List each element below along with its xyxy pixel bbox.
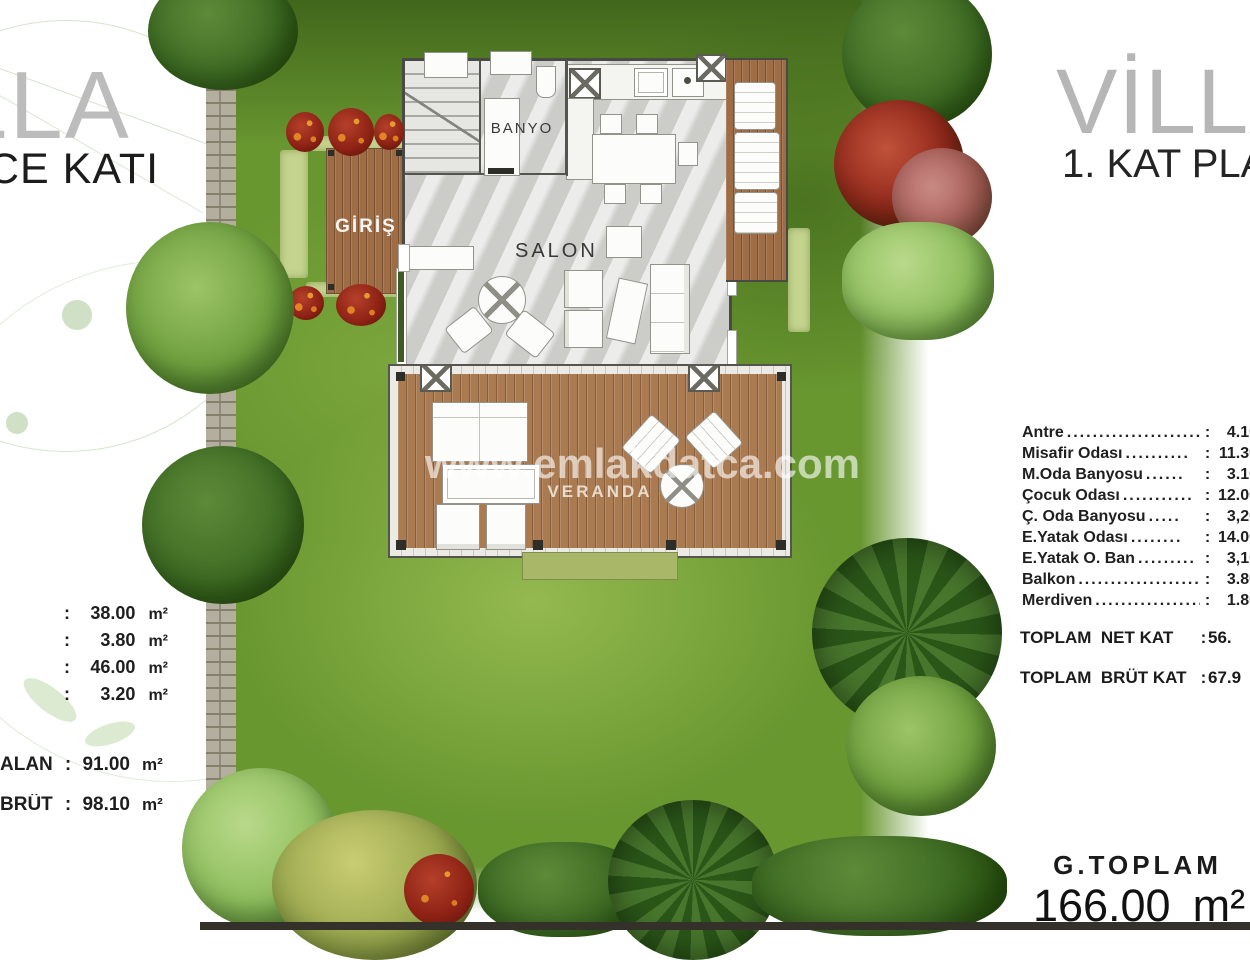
total-brut-row: TOPLAM BRÜT KAT : 67.9 — [1020, 668, 1250, 688]
total-value: 56. — [1208, 628, 1250, 648]
left-subtitle-partial: CE KATI — [0, 148, 159, 191]
side-table — [606, 226, 642, 258]
window-planter — [398, 272, 404, 362]
deck-post — [666, 540, 676, 550]
left-title-partial: LLA — [0, 58, 131, 154]
deck-post — [776, 540, 786, 550]
tree — [846, 676, 996, 816]
hedge-strip — [280, 150, 308, 278]
dining-chair — [604, 184, 626, 204]
room-row: E.Yatak O. Ban ......... : 3,10 — [1022, 550, 1250, 571]
leader-dots: ......... — [1138, 550, 1200, 568]
room-area: 3,10 — [1212, 550, 1250, 568]
measurement-row: : 38.00 m² — [64, 603, 168, 630]
room-name: Misafir Odası — [1022, 445, 1122, 463]
red-bush — [374, 114, 404, 150]
tree — [142, 446, 304, 604]
colon: : — [1203, 550, 1212, 568]
colon: : — [58, 754, 78, 776]
veranda-chair — [436, 504, 480, 550]
measurement-value: 3.80 — [76, 630, 135, 651]
room-area: 3.10 — [1212, 466, 1250, 484]
room-name: Çocuk Odası — [1022, 487, 1120, 505]
left-total-alan: ALAN : 91.00 m² — [0, 754, 163, 776]
colon: : — [1203, 592, 1212, 610]
bathtub — [484, 98, 520, 176]
tree — [126, 222, 294, 394]
room-area: 1.80 — [1212, 592, 1250, 610]
leader-dots: ..... — [1149, 508, 1200, 526]
deck-post — [533, 540, 543, 550]
total-value: 98.10 — [78, 794, 130, 816]
armchair — [564, 270, 603, 308]
bathtub-fixture — [488, 168, 514, 174]
kitchen-counter-side — [566, 98, 594, 180]
room-name: Ç. Oda Banyosu — [1022, 508, 1146, 526]
wall-vent — [424, 52, 468, 78]
colon: : — [1203, 466, 1212, 484]
deck-bolt — [328, 284, 334, 290]
leader-dots: .................. — [1095, 592, 1200, 610]
grand-total-unit: m² — [1193, 880, 1245, 931]
colon: : — [58, 794, 78, 816]
measurement-unit: m² — [148, 660, 168, 678]
red-bush — [328, 108, 374, 156]
room-name: Antre — [1022, 424, 1064, 442]
measurement-row: : 3.80 m² — [64, 630, 168, 657]
total-unit: m² — [142, 755, 163, 775]
leader-dots: .......... — [1125, 445, 1200, 463]
room-row: Çocuk Odası ........... : 12.00 — [1022, 487, 1250, 508]
colon: : — [64, 684, 76, 705]
grand-total-value-row: 166.00m² — [1028, 880, 1250, 932]
total-label: BRÜT — [0, 794, 58, 816]
deco-dot — [62, 300, 92, 330]
leader-dots: .................... — [1078, 571, 1200, 589]
dining-chair — [678, 142, 698, 166]
veranda-chair — [486, 504, 526, 550]
toilet — [536, 66, 556, 98]
total-label: ALAN — [0, 754, 58, 776]
leader-dots: ...... — [1146, 466, 1200, 484]
leader-dots: ...................... — [1067, 424, 1200, 442]
dining-chair — [636, 114, 658, 134]
room-name: Balkon — [1022, 571, 1075, 589]
red-bush — [336, 284, 386, 326]
deco-dot — [6, 412, 28, 434]
room-name: Merdiven — [1022, 592, 1092, 610]
giris-label: GİRİŞ — [330, 216, 402, 238]
left-measurements: : 38.00 m² : 3.80 m² : 46.00 m² : 3.20 m… — [64, 603, 168, 711]
measurement-row: : 46.00 m² — [64, 657, 168, 684]
door-entrance — [398, 244, 410, 272]
sideboard — [406, 246, 474, 270]
room-row: E.Yatak Odası ........ : 14.00 — [1022, 529, 1250, 550]
colon: : — [64, 603, 76, 624]
tree — [752, 836, 1007, 936]
colon: : — [1203, 445, 1212, 463]
armchair — [564, 310, 603, 348]
room-area: 14.00 — [1212, 529, 1250, 547]
leader-dots: ........... — [1123, 487, 1200, 505]
oven — [634, 68, 668, 97]
right-subtitle: 1. KAT PLANI — [1062, 144, 1250, 184]
measurement-row: : 3.20 m² — [64, 684, 168, 711]
banyo-label: BANYO — [478, 120, 566, 137]
total-unit: m² — [142, 795, 163, 815]
dining-chair — [600, 114, 622, 134]
red-bush — [404, 854, 474, 926]
measurement-value: 46.00 — [76, 657, 135, 678]
lounge-chair — [734, 192, 778, 234]
grand-total-label: G.TOPLAM — [1030, 850, 1245, 881]
lounge-chair — [734, 132, 780, 190]
measurement-unit: m² — [148, 633, 168, 651]
total-net-row: TOPLAM NET KAT : 56. — [1020, 628, 1250, 648]
deck-post — [777, 372, 786, 381]
room-area: 4.10 — [1212, 424, 1250, 442]
room-row: Misafir Odası .......... : 11.30 — [1022, 445, 1250, 466]
room-row: Ç. Oda Banyosu ..... : 3,20 — [1022, 508, 1250, 529]
room-name: E.Yatak Odası — [1022, 529, 1128, 547]
colon: : — [1203, 424, 1212, 442]
dining-chair — [640, 184, 662, 204]
total-label: TOPLAM NET KAT — [1020, 628, 1173, 648]
kitchen-wall — [566, 60, 568, 176]
leader-dots: ........ — [1131, 529, 1200, 547]
veranda-step-hedge — [522, 552, 678, 580]
room-schedule: Antre ...................... : 4.10 Misa… — [1022, 424, 1250, 613]
corner-post — [696, 54, 727, 82]
cooktop-burner — [684, 77, 691, 84]
total-value: 67.9 — [1208, 668, 1250, 688]
colon: : — [1203, 487, 1212, 505]
room-row: Balkon .................... : 3.80 — [1022, 571, 1250, 592]
red-bush — [286, 112, 324, 152]
colon: : — [1203, 529, 1212, 547]
room-row: Merdiven .................. : 1.80 — [1022, 592, 1250, 613]
hedge-strip — [788, 228, 810, 332]
staircase — [405, 61, 481, 175]
dining-table — [592, 134, 676, 184]
watermark: www.emlakdatca.com — [425, 440, 835, 488]
corner-post — [420, 364, 452, 392]
sofa — [650, 264, 690, 354]
grand-total-value: 166.00 — [1033, 880, 1171, 931]
measurement-value: 38.00 — [76, 603, 135, 624]
measurement-unit: m² — [148, 687, 168, 705]
left-total-brut: BRÜT : 98.10 m² — [0, 794, 163, 816]
deck-bolt — [328, 150, 334, 156]
room-name: M.Oda Banyosu — [1022, 466, 1143, 484]
room-area: 12.00 — [1212, 487, 1250, 505]
room-row: M.Oda Banyosu ...... : 3.10 — [1022, 466, 1250, 487]
room-name: E.Yatak O. Ban — [1022, 550, 1135, 568]
stone-path — [206, 0, 236, 890]
room-row: Antre ...................... : 4.10 — [1022, 424, 1250, 445]
colon: : — [1199, 628, 1208, 648]
total-value: 91.00 — [78, 754, 130, 776]
measurement-value: 3.20 — [76, 684, 135, 705]
tree — [842, 222, 994, 340]
lounge-chair — [734, 82, 776, 130]
total-label: TOPLAM BRÜT KAT — [1020, 668, 1187, 688]
colon: : — [1203, 508, 1212, 526]
colon: : — [1203, 571, 1212, 589]
site-plan-page: { "watermark": { "text": "www.emlakdatca… — [0, 0, 1250, 930]
room-area: 11.30 — [1212, 445, 1250, 463]
deck-post — [396, 372, 405, 381]
chimney — [490, 51, 532, 75]
right-title: VİLLA — [1056, 56, 1250, 148]
colon: : — [1199, 668, 1208, 688]
room-area: 3,20 — [1212, 508, 1250, 526]
salon-label: SALON — [515, 240, 595, 263]
colon: : — [64, 630, 76, 651]
room-area: 3.80 — [1212, 571, 1250, 589]
colon: : — [64, 657, 76, 678]
corner-post — [688, 364, 720, 392]
kitchen-sink-icon — [569, 68, 601, 99]
deck-post — [396, 540, 406, 550]
measurement-unit: m² — [148, 606, 168, 624]
